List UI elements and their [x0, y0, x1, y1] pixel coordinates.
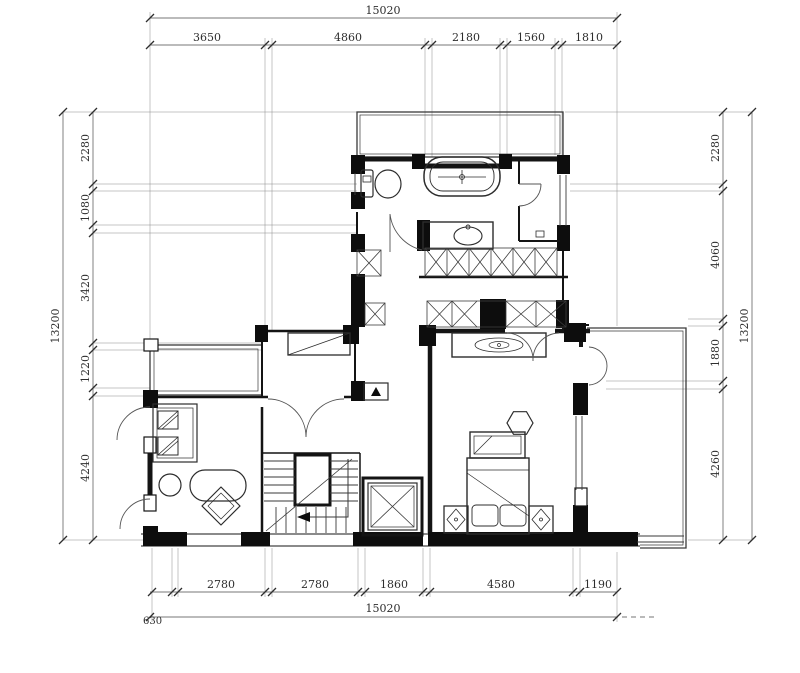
- wardrobe-row-lower: [365, 301, 566, 327]
- dim-right-seg-3: 1880: [709, 339, 722, 367]
- wardrobe-row-upper: [357, 248, 557, 276]
- dim-top-seg-3: 2180: [452, 31, 480, 44]
- stool: [159, 474, 181, 496]
- bathtub: [424, 157, 500, 196]
- dimension-chain-top: 15020 3650 4860 2180 1560 1810: [146, 4, 621, 49]
- terrace-top: [357, 112, 563, 157]
- dim-bottom-left-offset: 630: [143, 616, 162, 627]
- dim-right-seg-1: 2280: [709, 134, 722, 162]
- dim-top-seg-4: 1560: [517, 31, 545, 44]
- bed: [467, 432, 529, 534]
- elevator: [363, 478, 422, 535]
- dim-left-total: 13200: [49, 309, 62, 344]
- shaft-vent: [364, 383, 388, 400]
- nightstand-left: [444, 506, 468, 533]
- dim-left-seg-5: 4240: [79, 454, 92, 482]
- dim-left-seg-2: 1080: [79, 194, 92, 222]
- vanity-sink: [423, 222, 493, 249]
- dim-top-total: 15020: [366, 4, 401, 17]
- bay-window-left: [144, 339, 262, 395]
- dim-bottom-seg-1: 2780: [207, 578, 235, 591]
- dim-bottom-seg-2: 2780: [301, 578, 329, 591]
- dim-bottom-seg-5: 1190: [584, 578, 612, 591]
- dim-right-total: 13200: [738, 309, 751, 344]
- dim-left-seg-3: 3420: [79, 274, 92, 302]
- floor-plan-drawing: 15020 3650 4860 2180 1560 1810 2780 2780…: [0, 0, 800, 673]
- dim-bottom-total: 15020: [366, 602, 401, 615]
- stair-direction-arrow: [297, 512, 310, 522]
- dim-right-seg-4: 4260: [709, 450, 722, 478]
- toilet: [361, 170, 401, 198]
- dim-bottom-seg-3: 1860: [380, 578, 408, 591]
- staircase: [264, 455, 358, 533]
- dim-left-seg-4: 1220: [79, 355, 92, 383]
- cabinet: [288, 333, 350, 355]
- dim-top-seg-5: 1810: [575, 31, 603, 44]
- nightstand-right: [529, 506, 553, 533]
- shower-room: [519, 161, 560, 241]
- dimension-chain-left: 13200 2280 1080 3420 1220 4240: [49, 108, 97, 544]
- dim-left-seg-1: 2280: [79, 134, 92, 162]
- dim-bottom-seg-4: 4580: [487, 578, 515, 591]
- dim-top-seg-1: 3650: [193, 31, 221, 44]
- floor-plan-sheet: 15020 3650 4860 2180 1560 1810 2780 2780…: [0, 0, 800, 673]
- desk-chair-2: [158, 437, 178, 455]
- desk-chair-1: [158, 411, 178, 429]
- floor-cushion: [202, 487, 240, 525]
- dim-right-seg-2: 4060: [709, 241, 722, 269]
- dimension-chain-bottom: 2780 2780 1860 4580 1190 15020 630: [143, 578, 656, 627]
- dim-top-seg-2: 4860: [334, 31, 362, 44]
- pendant-lamp-hexagon: [507, 412, 533, 435]
